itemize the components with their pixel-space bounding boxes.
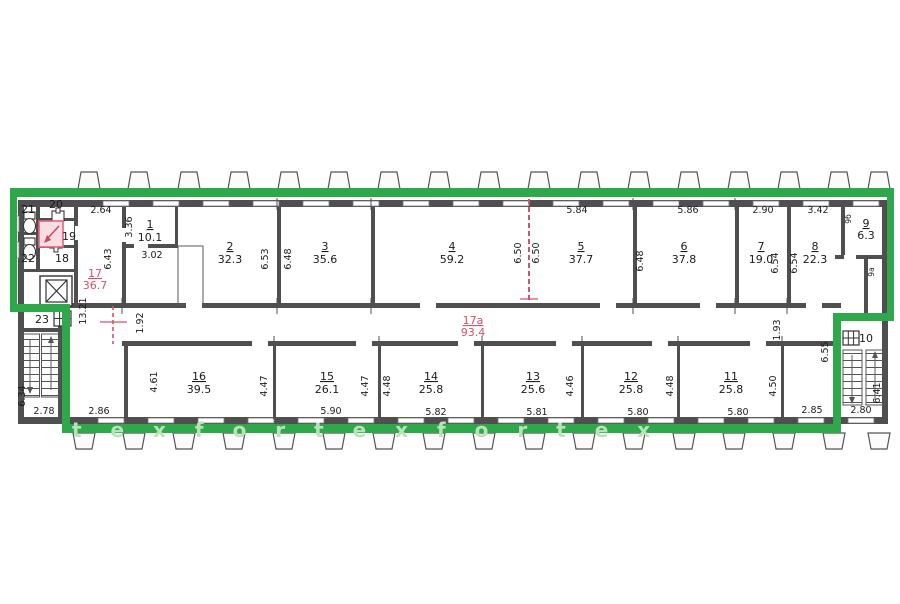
dim-4-48-b: 4.48	[665, 375, 676, 396]
svg-text:32.3: 32.3	[218, 253, 243, 266]
boundary-left	[10, 188, 17, 312]
room-label-9b: 9б	[844, 214, 853, 224]
svg-text:37.7: 37.7	[569, 253, 594, 266]
wall-room15-14	[378, 346, 381, 419]
svg-text:36.7: 36.7	[83, 279, 108, 292]
dim-2-86: 2.86	[88, 406, 109, 417]
door-gap	[458, 340, 474, 347]
page-background	[0, 0, 900, 604]
dim-13-21: 13.21	[78, 297, 89, 324]
floor-plan-page: t e x f o r t e x f o r t e x 1 10.1 2 3…	[0, 0, 900, 604]
dim-6-43: 6.43	[103, 248, 114, 269]
dim-4-50: 4.50	[768, 375, 779, 396]
dim-1-93: 1.93	[772, 319, 783, 340]
svg-text:11: 11	[724, 370, 738, 383]
room-label-19: 19	[62, 230, 76, 243]
dim-3-42: 3.42	[807, 205, 828, 216]
wall-room1-right	[175, 207, 178, 247]
dim-4-47-b: 4.47	[360, 375, 371, 396]
dim-5-80-b: 5.80	[727, 407, 748, 418]
dim-5-82: 5.82	[425, 407, 446, 418]
svg-text:26.1: 26.1	[315, 383, 340, 396]
door-gap	[700, 302, 716, 309]
watermark-text: t e x f o r t e x f o r t e x	[72, 418, 661, 442]
boundary-left-jog-v	[62, 304, 70, 433]
dim-6-54-b: 6.54	[789, 252, 800, 273]
dim-4-46: 4.46	[565, 375, 576, 396]
wall-room14-13	[481, 346, 484, 419]
svg-text:6.3: 6.3	[857, 229, 875, 242]
wall-block-east	[74, 207, 78, 308]
dim-2-90: 2.90	[752, 205, 773, 216]
boundary-right-jog-h	[833, 313, 894, 321]
wall-room6-7	[735, 207, 739, 307]
svg-text:22.3: 22.3	[803, 253, 828, 266]
dim-6-53: 6.53	[260, 248, 271, 269]
boundary-top	[10, 188, 894, 197]
dim-6-34: 6.34	[17, 385, 28, 406]
dim-5-90: 5.90	[320, 406, 341, 417]
door-gap	[252, 340, 268, 347]
room-label-17a: 17а 93.4	[461, 314, 486, 339]
svg-text:12: 12	[624, 370, 638, 383]
wall-room2-3	[277, 207, 281, 307]
dim-6-50-a: 6.50	[513, 242, 524, 263]
dim-6-48-a: 6.48	[283, 248, 294, 269]
dim-5-80-a: 5.80	[627, 407, 648, 418]
wall-stair23-top	[18, 328, 64, 332]
svg-text:16: 16	[192, 370, 206, 383]
svg-text:39.5: 39.5	[187, 383, 212, 396]
svg-text:93.4: 93.4	[461, 326, 486, 339]
door-gap	[420, 302, 436, 309]
svg-text:25.6: 25.6	[521, 383, 546, 396]
dim-2-85: 2.85	[801, 405, 822, 416]
svg-text:2: 2	[227, 240, 234, 253]
floor-plan-drawing: t e x f o r t e x f o r t e x 1 10.1 2 3…	[0, 0, 900, 604]
room-label-9a: 9а	[867, 267, 876, 276]
exit-arrow-marker	[39, 221, 63, 247]
dim-4-48-a: 4.48	[382, 375, 393, 396]
wall-room1-south	[122, 244, 178, 248]
svg-text:6: 6	[681, 240, 688, 253]
room-label-22: 22	[21, 252, 35, 265]
wall-room3-4	[371, 207, 375, 307]
svg-text:7: 7	[758, 240, 765, 253]
boundary-right	[887, 188, 894, 321]
svg-text:8: 8	[812, 240, 819, 253]
room-label-10: 10	[859, 332, 873, 345]
dim-4-47-a: 4.47	[259, 375, 270, 396]
wall-room16-left	[124, 341, 128, 419]
dim-1-92: 1.92	[135, 312, 146, 333]
svg-text:25.8: 25.8	[719, 383, 744, 396]
door-gap	[750, 340, 766, 347]
wall-block-south	[18, 269, 78, 272]
door-gap	[806, 302, 822, 309]
svg-text:3: 3	[322, 240, 329, 253]
grid-icon-10	[843, 331, 859, 345]
dim-3-02: 3.02	[141, 250, 162, 261]
boundary-left-jog-h	[10, 304, 70, 312]
door-gap	[186, 302, 202, 309]
dim-2-78: 2.78	[33, 406, 54, 417]
svg-text:14: 14	[424, 370, 438, 383]
dim-6-50-b: 6.50	[531, 242, 542, 263]
room-label-20: 20	[49, 198, 63, 211]
wall-room16-15	[273, 346, 276, 419]
dim-3-36: 3.36	[124, 216, 135, 237]
wall-room11-right	[781, 346, 784, 419]
svg-text:1: 1	[147, 218, 154, 231]
wall-room12-11	[677, 346, 680, 419]
svg-text:59.2: 59.2	[440, 253, 465, 266]
wall-room13-12	[581, 346, 584, 419]
door-gap	[600, 302, 616, 309]
dim-6-54-a: 6.54	[770, 252, 781, 273]
elevator-icon	[40, 276, 72, 306]
svg-text:37.8: 37.8	[672, 253, 697, 266]
room-label-21: 21	[21, 203, 35, 216]
svg-text:5: 5	[578, 240, 585, 253]
svg-text:35.6: 35.6	[313, 253, 338, 266]
dim-6-55: 6.55	[820, 341, 831, 362]
svg-text:4: 4	[449, 240, 456, 253]
dim-6-48-b: 6.48	[635, 250, 646, 271]
svg-text:25.8: 25.8	[419, 383, 444, 396]
room-label-23: 23	[35, 313, 49, 326]
dim-5-86: 5.86	[677, 205, 698, 216]
svg-text:25.8: 25.8	[619, 383, 644, 396]
svg-text:10.1: 10.1	[138, 231, 163, 244]
svg-text:15: 15	[320, 370, 334, 383]
door-gap	[556, 340, 572, 347]
door-gap	[356, 340, 372, 347]
dim-5-81: 5.81	[526, 407, 547, 418]
wall-room9-south	[835, 255, 885, 259]
dim-6-41: 6.41	[872, 382, 883, 403]
door-gap	[844, 255, 856, 261]
dim-4-61: 4.61	[149, 371, 160, 392]
dim-5-84: 5.84	[566, 205, 587, 216]
dim-2-64: 2.64	[90, 205, 111, 216]
boundary-right-jog-v	[833, 313, 841, 433]
room-label-18: 18	[55, 252, 69, 265]
door-gap	[652, 340, 668, 347]
svg-text:13: 13	[526, 370, 540, 383]
dim-2-80: 2.80	[850, 405, 871, 416]
